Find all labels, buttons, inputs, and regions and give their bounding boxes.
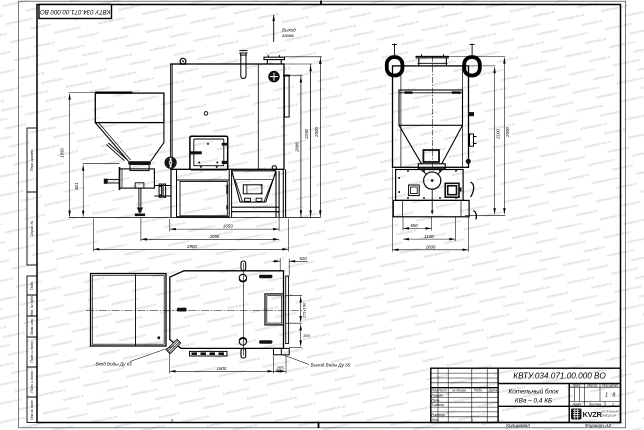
svg-text:205: 205	[275, 365, 284, 370]
svg-text:ЗАВОД КЗР: ЗАВОД КЗР	[602, 414, 617, 418]
svg-text:Дата: Дата	[488, 389, 498, 393]
svg-text:Формат А2: Формат А2	[585, 423, 612, 429]
svg-text:2250: 2250	[304, 129, 309, 140]
svg-text:1950: 1950	[60, 148, 65, 158]
svg-text:КВТУ 034.071.00.000 ВО: КВТУ 034.071.00.000 ВО	[40, 8, 111, 15]
svg-text:КВТУ.034.071.00.000 ВО: КВТУ.034.071.00.000 ВО	[513, 372, 606, 381]
svg-text:2095: 2095	[209, 234, 220, 239]
svg-text:520: 520	[299, 256, 307, 261]
svg-text:1600: 1600	[217, 366, 227, 371]
svg-text:2500: 2500	[314, 127, 319, 138]
svg-text:Подп. и дата: Подп. и дата	[30, 341, 34, 362]
svg-text:Перв. примен.: Перв. примен.	[30, 149, 34, 172]
svg-text:550: 550	[410, 223, 418, 228]
svg-text:КВа – 0,4 КБ: КВа – 0,4 КБ	[515, 398, 552, 405]
svg-text:Изм Лист: Изм Лист	[432, 389, 448, 393]
svg-text:Инв.№ подл.: Инв.№ подл.	[30, 400, 34, 420]
svg-text:300: 300	[303, 333, 310, 338]
svg-text:1650: 1650	[223, 224, 233, 229]
svg-text:821: 821	[74, 182, 79, 190]
svg-text:1 : 8: 1 : 8	[605, 393, 615, 399]
svg-text:271x190: 271x190	[302, 302, 307, 319]
svg-text:Котельный блок: Котельный блок	[508, 388, 559, 396]
svg-text:1: 1	[612, 402, 614, 406]
svg-text:Пров.: Пров.	[432, 398, 441, 402]
svg-text:Подп.: Подп.	[30, 281, 34, 290]
svg-text:Листов: Листов	[588, 402, 602, 406]
svg-text:Н.контр.: Н.контр.	[432, 413, 446, 417]
svg-text:Подп.: Подп.	[474, 389, 483, 393]
svg-text:№ докум.: № докум.	[452, 389, 467, 393]
svg-text:Масштаб: Масштаб	[602, 383, 618, 387]
svg-text:Лист: Лист	[572, 402, 582, 406]
svg-text:2086: 2086	[294, 142, 299, 153]
svg-text:Вход Воды Ду 65: Вход Воды Ду 65	[96, 362, 133, 367]
svg-text:Масса: Масса	[587, 383, 597, 387]
svg-text:Подп. и дата: Подп. и дата	[30, 371, 34, 392]
svg-text:Выход: Выход	[282, 28, 296, 33]
svg-text:газов: газов	[282, 33, 294, 38]
svg-text:Инв. № дубл.: Инв. № дубл.	[30, 295, 34, 316]
svg-text:1600: 1600	[426, 245, 436, 250]
svg-text:Выход Воды Ду 65: Выход Воды Ду 65	[311, 363, 351, 368]
svg-text:Разраб.: Разраб.	[432, 394, 444, 398]
svg-text:Взам. инв.: Взам. инв.	[30, 318, 34, 334]
svg-text:2100: 2100	[495, 129, 500, 140]
svg-text:Справ. №: Справ. №	[30, 220, 34, 236]
svg-text:2500: 2500	[505, 127, 510, 138]
svg-text:1100: 1100	[424, 234, 434, 239]
svg-text:2: 2	[170, 418, 174, 423]
svg-text:Лит.: Лит.	[572, 383, 581, 387]
svg-text:КОТЕЛЬНЫЙ: КОТЕЛЬНЫЙ	[602, 410, 619, 414]
svg-text:2900: 2900	[186, 244, 197, 249]
svg-text:Копировал: Копировал	[506, 423, 530, 429]
svg-text:Т.контр.: Т.контр.	[432, 403, 445, 407]
svg-text:Утв.: Утв.	[432, 418, 440, 422]
svg-text:KVZR: KVZR	[583, 410, 603, 419]
